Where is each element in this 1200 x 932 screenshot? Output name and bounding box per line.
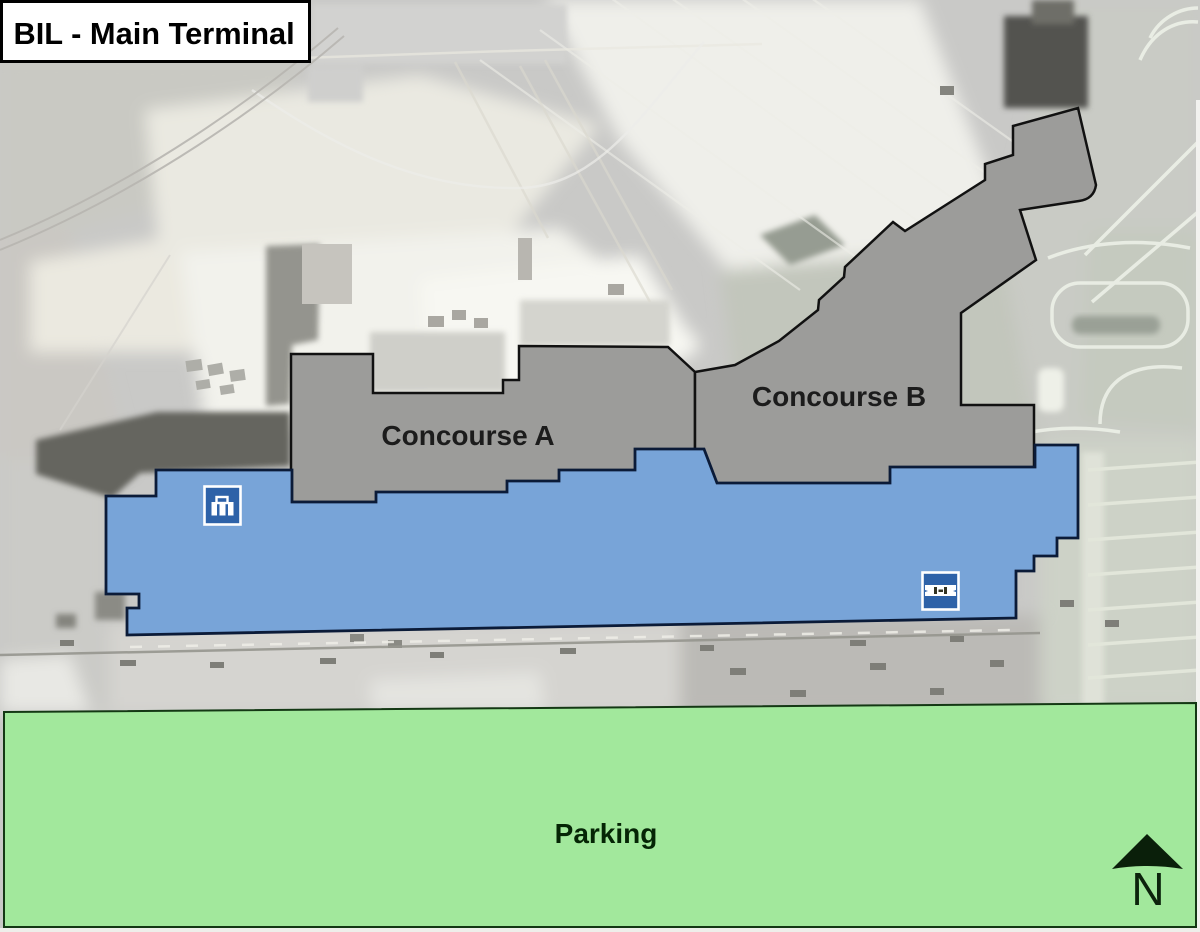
svg-text:Concourse A: Concourse A [381,420,554,451]
svg-text:BIL - Main Terminal: BIL - Main Terminal [14,16,295,51]
svg-text:N: N [1131,863,1164,915]
svg-text:Concourse B: Concourse B [752,381,926,412]
svg-text:Parking: Parking [555,818,658,849]
